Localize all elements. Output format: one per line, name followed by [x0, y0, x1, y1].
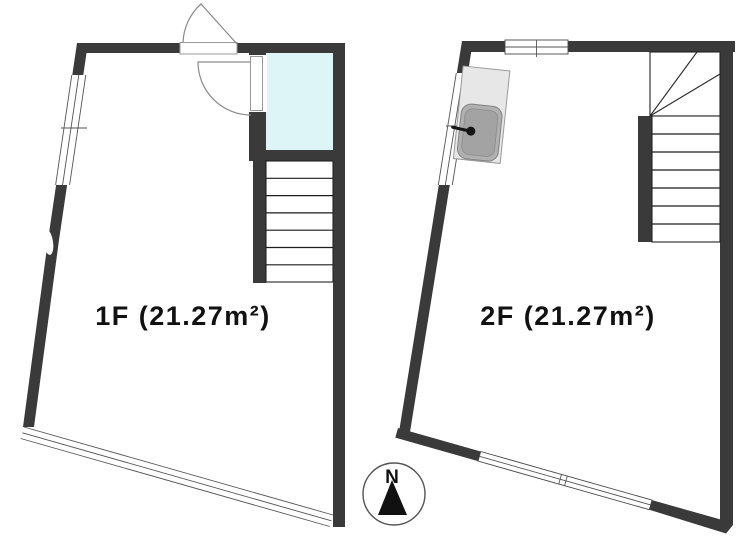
2f-bottom-window-midline: [479, 456, 650, 505]
1f-staircase: [266, 161, 333, 282]
1f-bathroom-door: [198, 55, 267, 115]
1f-bathroom-unit: [266, 53, 333, 150]
2f-right-wall: [720, 41, 733, 525]
1f-bottom-window: [21, 427, 333, 527]
2f-top-wall: [462, 41, 735, 52]
north-compass: N: [363, 463, 425, 525]
1f-bottom-window-line-1: [24, 427, 333, 515]
1f-bathroom-bottom-wall: [253, 150, 345, 161]
1f-bottom-window-line-2: [22, 433, 331, 521]
kitchen-sink-bowl: [461, 108, 499, 157]
2f-stair-left-wall: [638, 116, 652, 242]
1f-right-wall: [333, 43, 345, 527]
floor-plan-2f: 2F (21.27m²): [395, 40, 735, 534]
1f-entrance-threshold: [180, 43, 237, 55]
1f-entrance-door: [180, 4, 237, 54]
1f-bathroom-door-threshold: [251, 57, 263, 111]
2f-bottom-window: [478, 452, 652, 510]
floor-plan-1f: 1F (21.27m²): [21, 4, 345, 527]
1f-stair-left-wall: [253, 161, 266, 283]
1f-stair-outline: [266, 161, 333, 282]
1f-area-label: 1F (21.27m²): [95, 301, 271, 331]
2f-area-label: 2F (21.27m²): [480, 301, 656, 331]
floor-plan-drawing: 1F (21.27m²): [0, 0, 753, 540]
floor-plan-page: 1F (21.27m²): [0, 0, 753, 540]
1f-bathroom-door-swing-icon: [198, 62, 251, 115]
1f-left-window: [55, 75, 87, 185]
2f-staircase: [650, 52, 720, 242]
2f-top-window: [505, 40, 568, 57]
1f-bottom-window-line-3: [21, 439, 330, 527]
2f-bottom-wall-left: [395, 428, 480, 461]
2f-winder-outline: [650, 52, 720, 116]
1f-entrance-door-swing-icon: [183, 4, 237, 44]
2f-flight-outline: [652, 116, 720, 242]
